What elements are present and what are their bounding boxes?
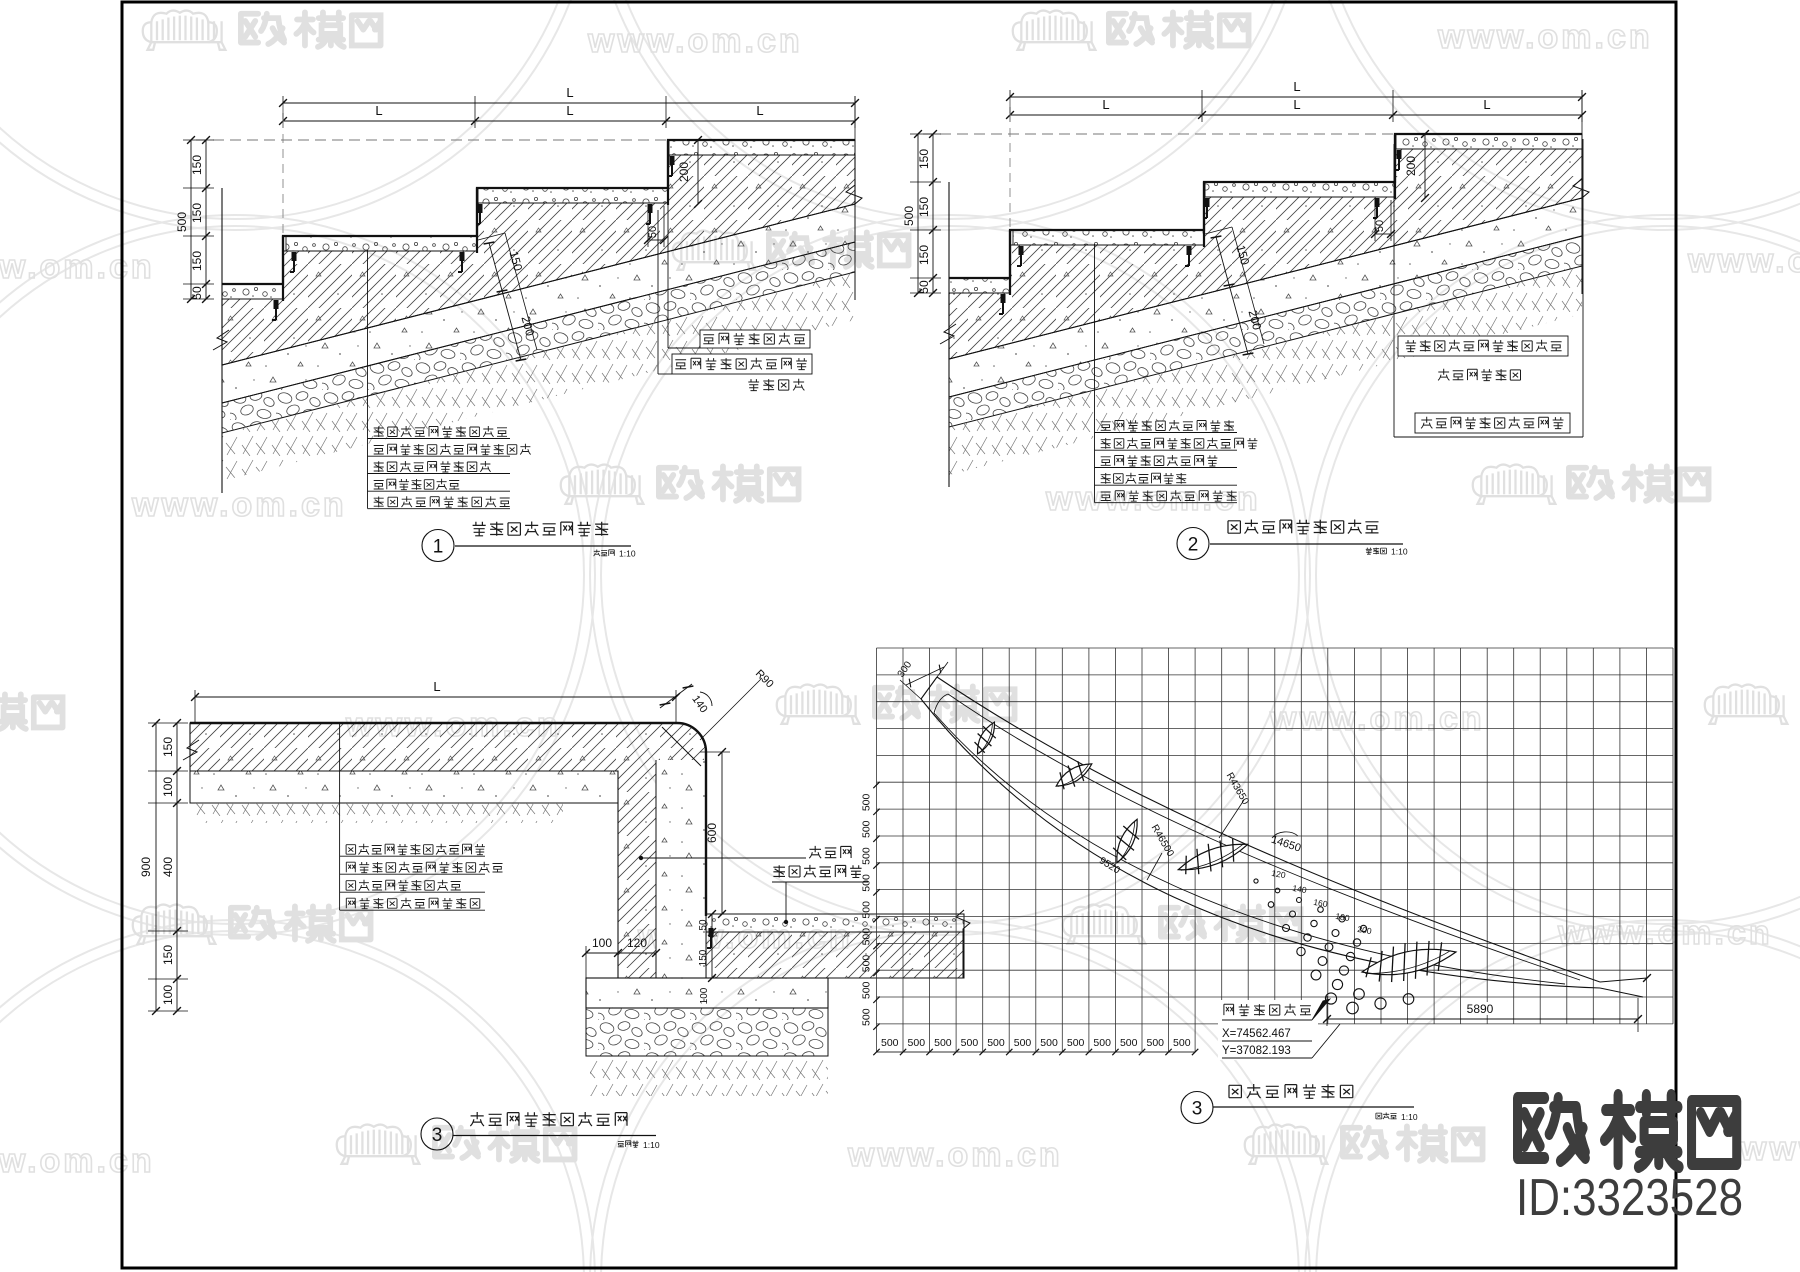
svg-text:140: 140 — [1292, 883, 1308, 895]
svg-text:500: 500 — [934, 1037, 952, 1049]
svg-text:500: 500 — [1040, 1037, 1058, 1049]
svg-text:600: 600 — [705, 823, 719, 843]
svg-text:L: L — [375, 103, 382, 118]
svg-text:900: 900 — [139, 857, 153, 877]
svg-text:150: 150 — [190, 155, 204, 175]
svg-text:www.om.cn: www.om.cn — [1045, 480, 1261, 518]
svg-text:150: 150 — [917, 197, 931, 217]
svg-text:2: 2 — [1188, 535, 1199, 556]
svg-text:150: 150 — [161, 737, 175, 757]
svg-text:1:10: 1:10 — [1391, 547, 1408, 557]
svg-text:X=74562.467: X=74562.467 — [1222, 1028, 1291, 1040]
svg-text:500: 500 — [861, 874, 873, 892]
svg-text:www.om.cn: www.om.cn — [0, 248, 155, 286]
svg-text:www.om.cn: www.om.cn — [0, 1142, 155, 1180]
svg-text:500: 500 — [1014, 1037, 1032, 1049]
svg-text:150: 150 — [190, 203, 204, 223]
svg-text:120: 120 — [1271, 868, 1287, 880]
svg-text:500: 500 — [1147, 1037, 1165, 1049]
svg-text:500: 500 — [961, 1037, 979, 1049]
svg-text:1: 1 — [433, 537, 444, 558]
svg-text:ID:3323528: ID:3323528 — [1516, 1169, 1743, 1227]
svg-text:www.om.cn: www.om.cn — [131, 486, 347, 524]
svg-text:100: 100 — [699, 987, 710, 1004]
svg-text:150: 150 — [161, 945, 175, 965]
svg-text:200: 200 — [1357, 924, 1373, 936]
svg-text:Y=37082.193: Y=37082.193 — [1222, 1045, 1291, 1057]
svg-text:500: 500 — [861, 955, 873, 973]
svg-text:100: 100 — [161, 777, 175, 797]
svg-text:200: 200 — [677, 162, 691, 182]
svg-text:500: 500 — [861, 793, 873, 811]
svg-text:500: 500 — [861, 928, 873, 946]
svg-text:500: 500 — [861, 847, 873, 865]
svg-text:www.om.cn: www.om.cn — [847, 1136, 1063, 1174]
svg-text:L: L — [566, 85, 573, 100]
svg-text:www.om.cn: www.om.cn — [1437, 18, 1653, 56]
svg-text:160: 160 — [1313, 897, 1329, 909]
svg-text:1:10: 1:10 — [1401, 1112, 1418, 1122]
svg-text:500: 500 — [1067, 1037, 1085, 1049]
svg-text:500: 500 — [902, 206, 916, 226]
svg-text:www.om.cn: www.om.cn — [1739, 1130, 1800, 1168]
svg-text:50: 50 — [917, 280, 931, 294]
svg-text:www.om.cn: www.om.cn — [587, 22, 803, 60]
svg-text:www.om.cn: www.om.cn — [1687, 242, 1800, 280]
svg-text:150: 150 — [917, 149, 931, 169]
svg-text:L: L — [1483, 97, 1490, 112]
svg-text:L: L — [566, 103, 573, 118]
svg-text:150: 150 — [190, 251, 204, 271]
svg-text:500: 500 — [861, 901, 873, 919]
svg-text:3: 3 — [432, 1125, 443, 1146]
svg-text:500: 500 — [175, 212, 189, 232]
svg-text:50: 50 — [647, 226, 659, 238]
svg-text:1:10: 1:10 — [643, 1140, 660, 1150]
svg-text:100: 100 — [161, 985, 175, 1005]
svg-text:120: 120 — [627, 936, 647, 950]
svg-text:500: 500 — [1093, 1037, 1111, 1049]
svg-text:500: 500 — [861, 820, 873, 838]
svg-text:L: L — [1293, 97, 1300, 112]
svg-text:500: 500 — [1173, 1037, 1191, 1049]
svg-text:L: L — [756, 103, 763, 118]
svg-text:L: L — [1293, 79, 1300, 94]
svg-text:R43650: R43650 — [1224, 771, 1251, 807]
svg-text:1:10: 1:10 — [619, 549, 636, 559]
svg-text:500: 500 — [861, 1008, 873, 1026]
svg-text:400: 400 — [161, 857, 175, 877]
svg-text:150: 150 — [917, 245, 931, 265]
svg-text:3: 3 — [1192, 1099, 1203, 1120]
svg-text:500: 500 — [1120, 1037, 1138, 1049]
svg-text:140: 140 — [689, 693, 709, 715]
svg-text:5890: 5890 — [1467, 1002, 1494, 1016]
svg-text:L: L — [433, 679, 440, 694]
svg-text:L: L — [1102, 97, 1109, 112]
svg-text:www.om.cn: www.om.cn — [1557, 914, 1773, 952]
svg-text:R90: R90 — [753, 668, 776, 691]
svg-text:300: 300 — [896, 659, 915, 679]
svg-text:R46500: R46500 — [1149, 823, 1176, 859]
svg-text:500: 500 — [861, 981, 873, 999]
svg-text:180: 180 — [1335, 911, 1351, 923]
svg-text:50: 50 — [698, 919, 709, 931]
svg-text:500: 500 — [908, 1037, 926, 1049]
svg-text:50: 50 — [1374, 220, 1386, 232]
svg-text:200: 200 — [1404, 156, 1418, 176]
svg-text:50: 50 — [190, 286, 204, 300]
svg-text:500: 500 — [987, 1037, 1005, 1049]
svg-text:150: 150 — [698, 949, 709, 966]
svg-text:100: 100 — [592, 936, 612, 950]
svg-text:500: 500 — [881, 1037, 899, 1049]
